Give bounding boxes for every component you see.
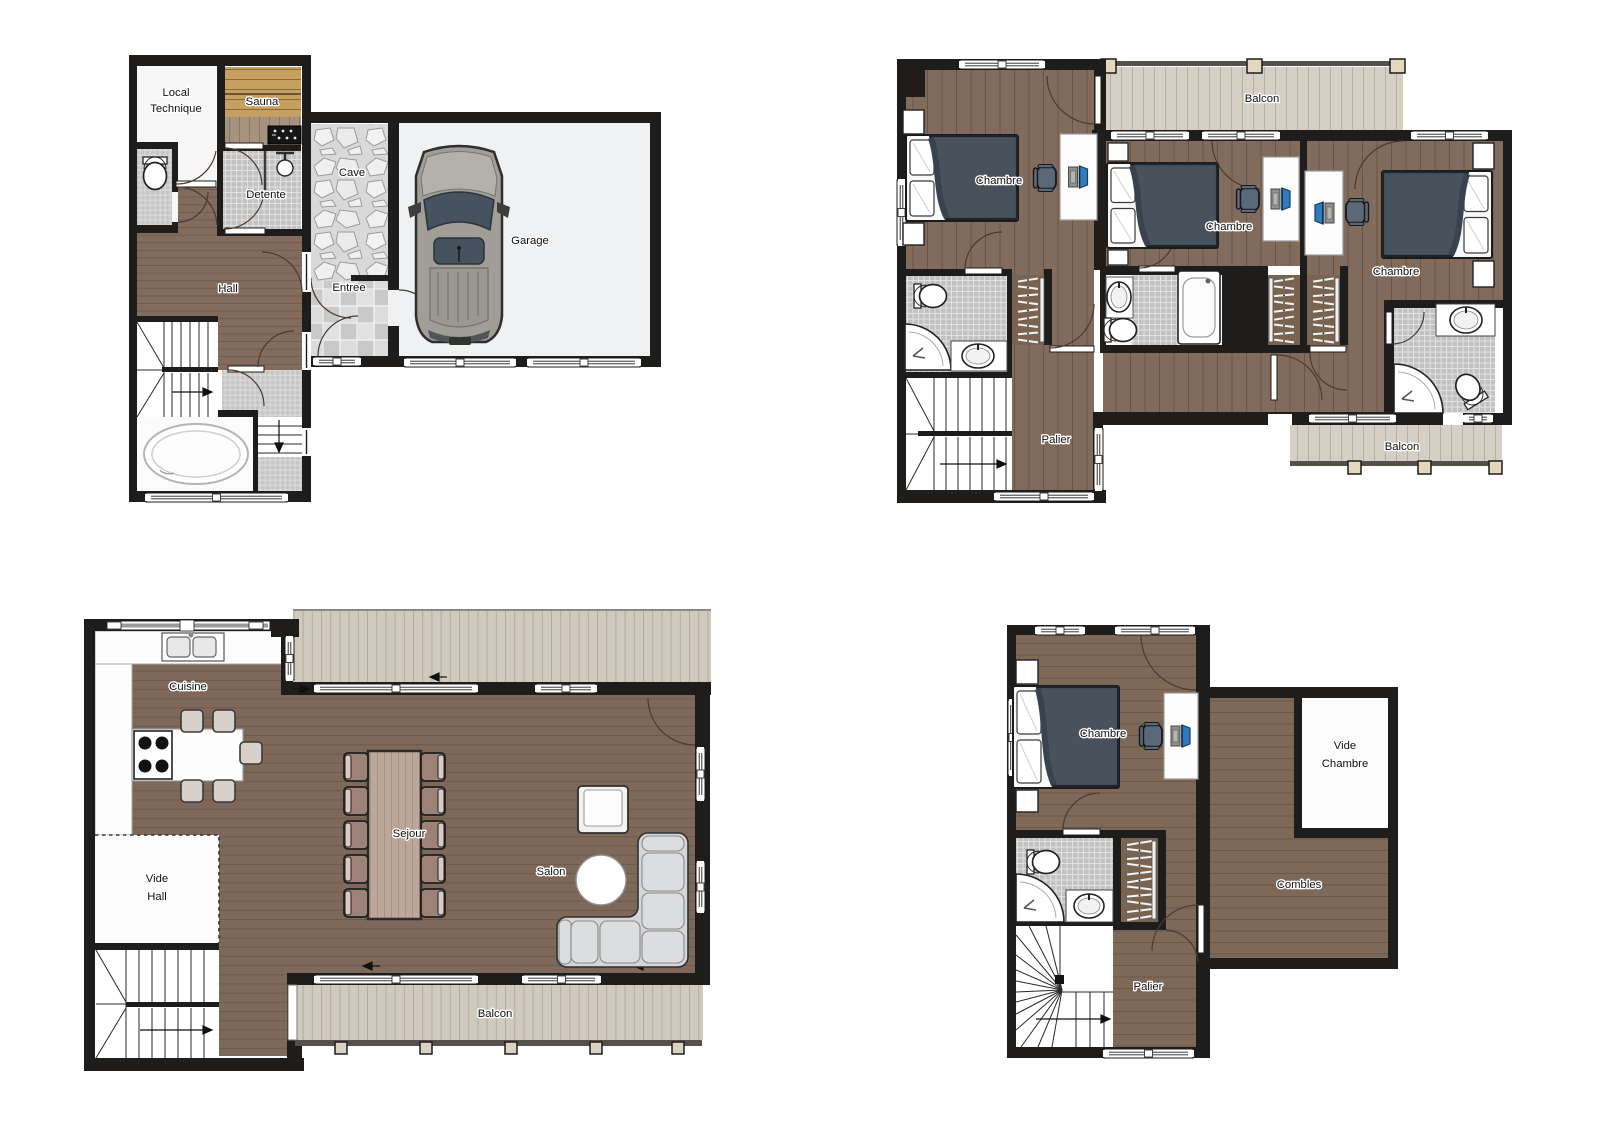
svg-text:Local: Local bbox=[162, 87, 189, 99]
svg-text:Balcon: Balcon bbox=[1245, 93, 1280, 105]
svg-text:Salon: Salon bbox=[537, 866, 566, 878]
svg-text:Sejour: Sejour bbox=[393, 828, 426, 840]
svg-text:Vide: Vide bbox=[1334, 740, 1356, 752]
svg-text:Sauna: Sauna bbox=[246, 96, 279, 108]
svg-text:Chambre: Chambre bbox=[976, 175, 1022, 187]
svg-text:Hall: Hall bbox=[218, 283, 237, 295]
svg-text:Chambre: Chambre bbox=[1373, 266, 1419, 278]
svg-text:Detente: Detente bbox=[246, 189, 286, 201]
svg-text:Chambre: Chambre bbox=[1080, 728, 1126, 740]
svg-text:Technique: Technique bbox=[150, 103, 202, 115]
svg-text:Combles: Combles bbox=[1277, 879, 1322, 891]
svg-text:Balcon: Balcon bbox=[478, 1008, 513, 1020]
svg-text:Garage: Garage bbox=[511, 235, 549, 247]
svg-text:Palier: Palier bbox=[1042, 434, 1071, 446]
svg-text:Entree: Entree bbox=[332, 282, 365, 294]
svg-text:Chambre: Chambre bbox=[1206, 221, 1252, 233]
svg-text:Cave: Cave bbox=[339, 167, 365, 179]
svg-text:Vide: Vide bbox=[146, 873, 168, 885]
svg-text:Cuisine: Cuisine bbox=[169, 681, 207, 693]
svg-text:Balcon: Balcon bbox=[1385, 441, 1420, 453]
svg-text:Palier: Palier bbox=[1134, 981, 1163, 993]
svg-text:Chambre: Chambre bbox=[1322, 758, 1368, 770]
svg-text:Hall: Hall bbox=[147, 891, 166, 903]
